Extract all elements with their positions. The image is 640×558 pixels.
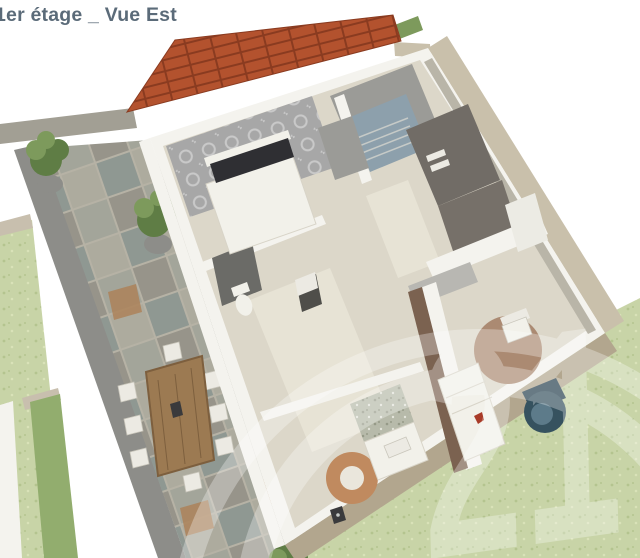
dining-chair	[215, 436, 234, 456]
floorplan-svg: 21 1er étage _ Vue Est	[0, 0, 640, 558]
page-title: 1er étage _ Vue Est	[0, 4, 177, 26]
dining-chair	[163, 342, 182, 362]
floorplan-render: 21 1er étage _ Vue Est	[0, 0, 640, 558]
plant-pot	[144, 234, 172, 254]
dining-chair	[209, 403, 228, 423]
half-round-rug-center	[340, 466, 364, 490]
dining-chair	[124, 415, 143, 435]
speaker-dot	[336, 513, 340, 517]
dining-chair	[130, 448, 149, 468]
plant-pot	[37, 175, 63, 193]
plant-foliage	[37, 131, 55, 149]
dining-chair	[118, 382, 137, 402]
dining-chair	[183, 472, 202, 492]
